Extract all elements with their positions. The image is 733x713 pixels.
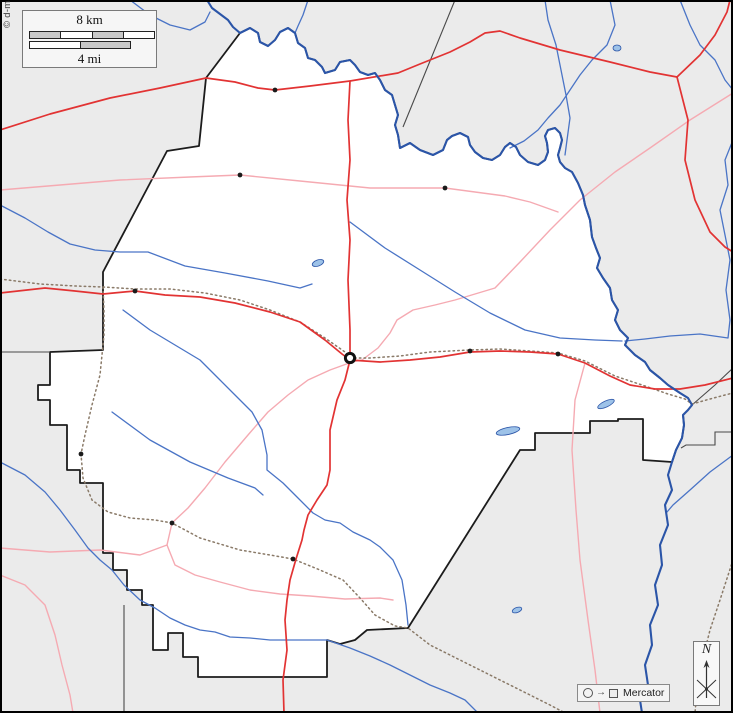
town-dot	[170, 521, 175, 526]
map-stage: © d-maps.com 8 km 4 mi N → Mercator	[0, 0, 733, 713]
county-seat-marker	[345, 353, 354, 362]
town-dot	[238, 173, 243, 178]
scale-segment	[30, 32, 61, 38]
town-dot	[273, 88, 278, 93]
town-dot	[556, 352, 561, 357]
town-dot	[443, 186, 448, 191]
town-dot	[291, 557, 296, 562]
legend-arrow-icon: →	[596, 688, 606, 698]
scale-mi-bar	[29, 41, 131, 49]
scale-segment	[124, 32, 154, 38]
scale-segment	[30, 42, 81, 48]
town-dot	[468, 349, 473, 354]
north-label: N	[694, 642, 719, 658]
projection-label: Mercator	[621, 687, 664, 699]
north-arrow-icon	[695, 658, 718, 702]
scale-segment	[61, 32, 92, 38]
north-indicator: N	[693, 641, 720, 706]
town-dot	[79, 452, 84, 457]
scale-km-label: 8 km	[23, 12, 156, 28]
lake	[613, 45, 621, 51]
scale-bar: 8 km 4 mi	[22, 10, 157, 68]
scale-segment	[81, 42, 131, 48]
legend-square-icon	[609, 689, 618, 698]
projection-legend: → Mercator	[577, 684, 670, 702]
scale-mi-label: 4 mi	[23, 51, 156, 67]
town-dot	[133, 289, 138, 294]
copyright-text: © d-maps.com	[2, 14, 13, 28]
legend-circle-icon	[583, 688, 593, 698]
map-canvas	[0, 0, 733, 713]
scale-km-bar	[29, 31, 155, 39]
scale-segment	[93, 32, 124, 38]
